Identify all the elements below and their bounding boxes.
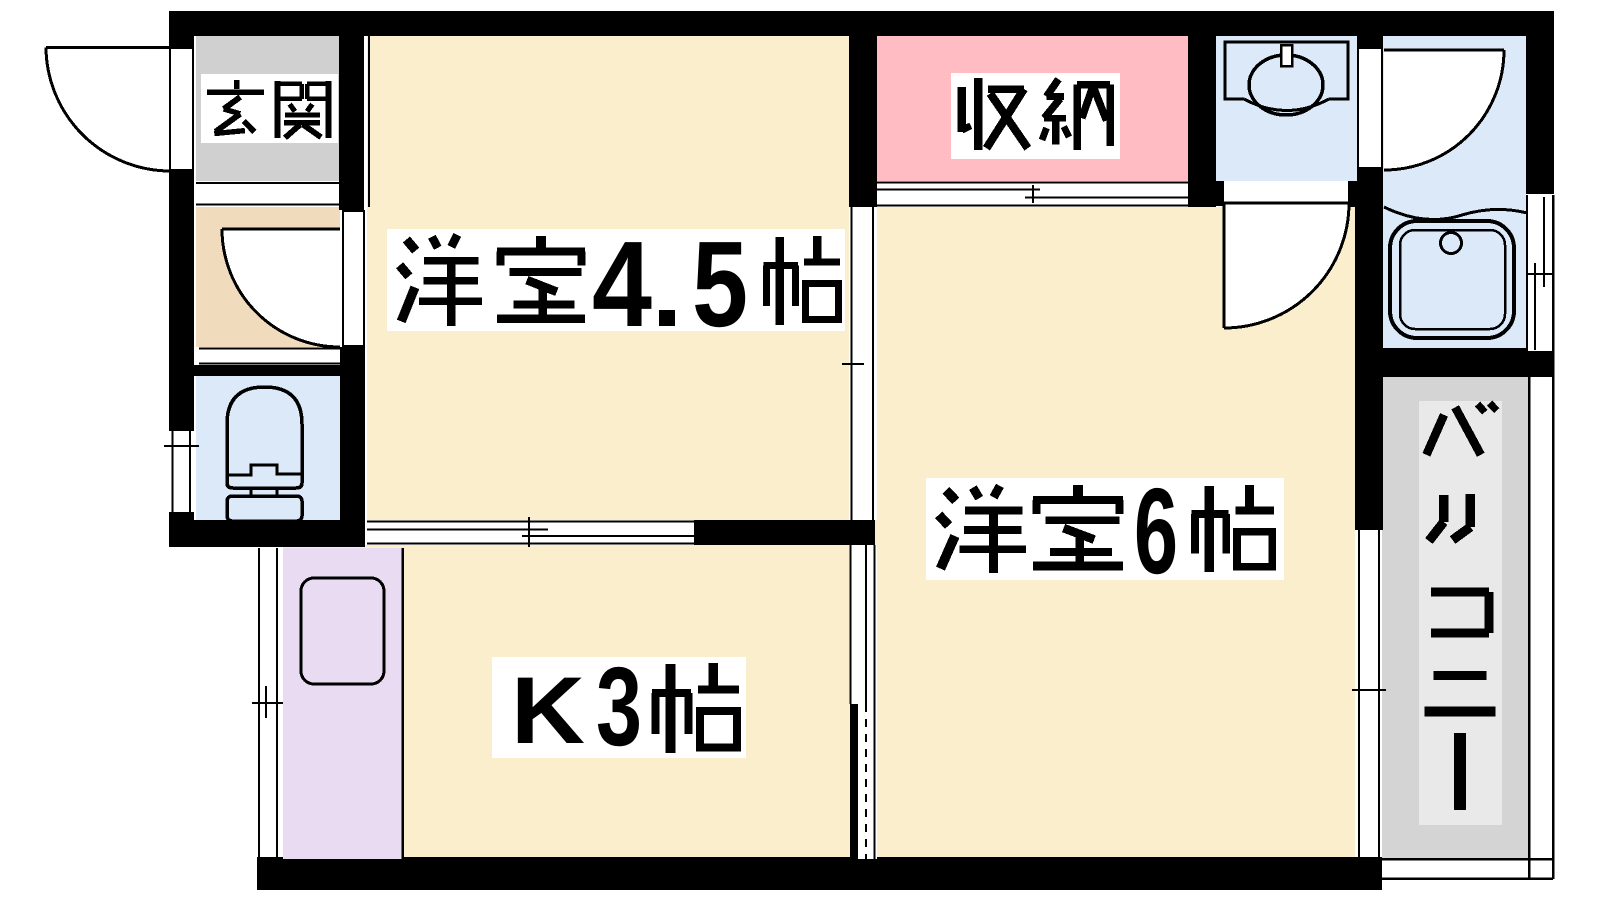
svg-text:K: K [511, 658, 585, 764]
svg-text:4: 4 [592, 216, 652, 352]
svg-text:3: 3 [596, 644, 642, 769]
svg-text:6: 6 [1134, 463, 1178, 599]
svg-text:5: 5 [692, 216, 748, 352]
